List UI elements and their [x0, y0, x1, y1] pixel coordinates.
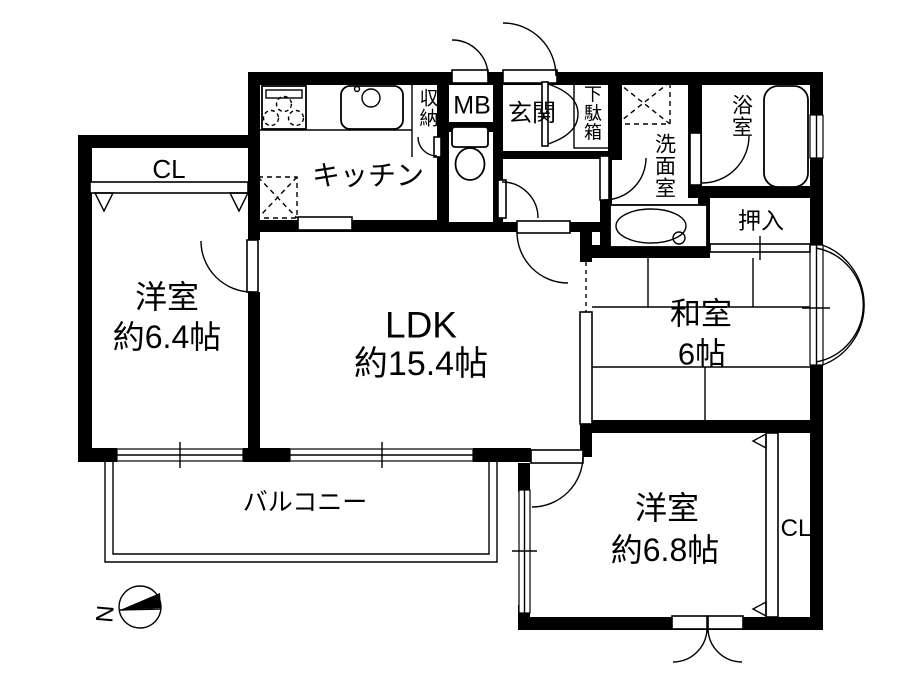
toilet-door	[498, 180, 538, 218]
kitchen-label: キッチン	[312, 162, 424, 190]
refrigerator-space	[258, 177, 297, 218]
meter-box-door	[452, 40, 488, 83]
oshiire-fusuma	[710, 236, 810, 260]
balcony-window-right	[290, 442, 473, 468]
storage-door	[418, 137, 441, 157]
ldk-name: LDK	[385, 307, 457, 344]
compass-north-label: N	[93, 604, 118, 623]
washitsu-sliding-door	[580, 262, 592, 424]
meter-box-label: MB	[453, 94, 491, 119]
shoe-box-label: 下駄箱	[583, 85, 601, 142]
bathroom-door	[690, 133, 749, 185]
ldk-size: 約15.4帖	[354, 347, 488, 381]
west-room2-name: 洋室	[635, 492, 699, 524]
west-room1-name: 洋室	[135, 281, 199, 313]
washroom-door	[600, 156, 646, 200]
washer-space	[617, 82, 670, 124]
west-room2-window	[512, 490, 537, 613]
bathtub-icon	[764, 86, 808, 187]
bathroom-label: 浴室	[731, 94, 752, 138]
washbasin-icon	[610, 205, 707, 247]
west-room1-door	[201, 240, 258, 292]
washitsu-size: 6帖	[678, 339, 726, 370]
west-room2-size: 約6.8帖	[611, 534, 720, 566]
bathroom-window	[810, 115, 823, 158]
west-room2-door	[531, 450, 583, 507]
floor-plan: CL 洋室 約6.4帖 キッチン 収納 MB 玄関 下駄箱 洗面室 浴室 押入 …	[0, 0, 900, 675]
balcony-window-left	[117, 442, 243, 468]
stove-icon	[262, 86, 306, 129]
washroom-label: 洗面室	[654, 133, 675, 199]
closet-right-folding-door	[753, 433, 778, 617]
oshiire-label: 押入	[738, 210, 784, 233]
bow-window	[802, 243, 864, 367]
washitsu-name: 和室	[670, 299, 732, 330]
kitchen-opening	[298, 217, 352, 230]
balcony-label: バルコニー	[243, 491, 368, 516]
storage-label: 収納	[418, 88, 437, 128]
entrance-label: 玄関	[508, 102, 556, 126]
west-room2-double-doors	[672, 616, 743, 662]
compass-icon	[119, 586, 161, 628]
closet-right-label: CL	[781, 517, 812, 541]
entrance-door	[503, 23, 557, 83]
ldk-door	[517, 221, 570, 283]
toilet-icon	[452, 127, 488, 180]
sink-icon	[341, 86, 403, 129]
closet-left-label: CL	[152, 156, 185, 182]
west-room1-size: 約6.4帖	[113, 321, 222, 353]
closet-left-front	[90, 182, 248, 211]
